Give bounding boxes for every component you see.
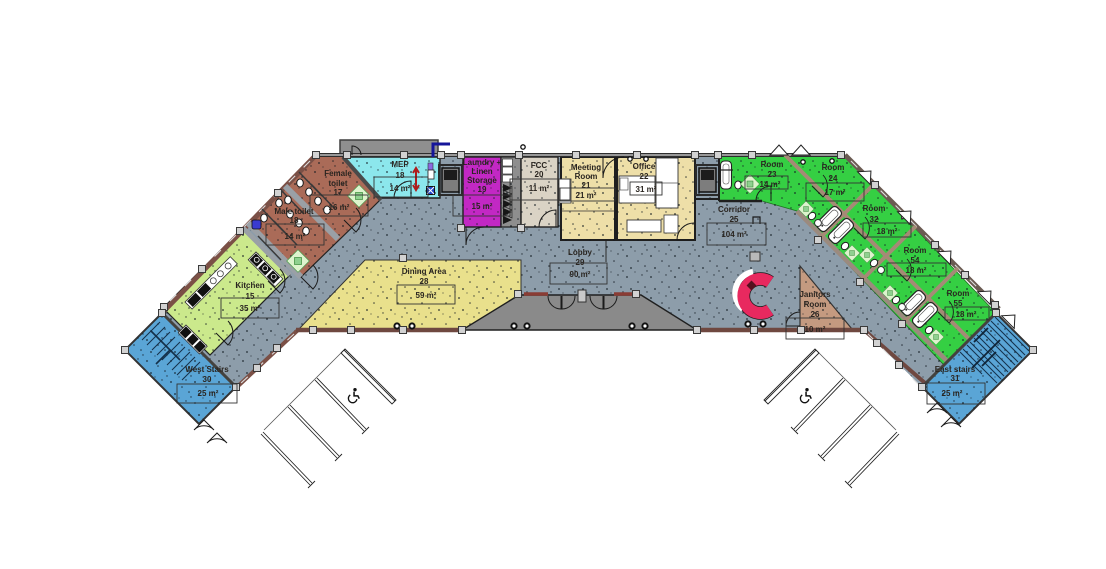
- svg-text:17 m²: 17 m²: [825, 188, 846, 197]
- svg-text:10 m²: 10 m²: [805, 325, 826, 334]
- svg-text:Meeting: Meeting: [571, 163, 601, 172]
- svg-text:East stairs: East stairs: [935, 365, 976, 374]
- svg-text:Corridor: Corridor: [718, 205, 750, 214]
- svg-text:14 m²: 14 m²: [390, 184, 411, 193]
- svg-text:Room: Room: [904, 246, 927, 255]
- svg-text:MEP: MEP: [391, 160, 409, 169]
- svg-text:Female: Female: [324, 169, 352, 178]
- svg-text:16 m²: 16 m²: [329, 203, 350, 212]
- svg-text:31 m²: 31 m²: [636, 185, 657, 194]
- svg-text:25 m²: 25 m²: [198, 389, 219, 398]
- svg-text:20: 20: [535, 170, 544, 179]
- svg-text:Dining Area: Dining Area: [402, 267, 447, 276]
- svg-text:Room: Room: [863, 204, 886, 213]
- svg-text:24: 24: [829, 174, 838, 183]
- svg-text:Storage: Storage: [467, 176, 497, 185]
- svg-text:25 m²: 25 m²: [942, 389, 963, 398]
- svg-text:19: 19: [478, 185, 487, 194]
- svg-text:Office: Office: [633, 162, 656, 171]
- svg-text:15 m²: 15 m²: [472, 202, 493, 211]
- svg-text:18 m²: 18 m²: [877, 227, 898, 236]
- svg-text:17: 17: [334, 188, 343, 197]
- svg-text:Laundry +: Laundry +: [463, 158, 502, 167]
- svg-text:104 m²: 104 m²: [721, 230, 747, 239]
- svg-text:14 m²: 14 m²: [285, 232, 306, 241]
- svg-text:Janitors: Janitors: [799, 290, 831, 299]
- svg-text:54: 54: [911, 256, 920, 265]
- svg-text:15: 15: [246, 292, 255, 301]
- svg-text:toilet: toilet: [328, 179, 347, 188]
- svg-text:Linen: Linen: [471, 167, 492, 176]
- svg-text:Male toilet: Male toilet: [274, 207, 313, 216]
- svg-text:18: 18: [396, 171, 405, 180]
- svg-text:Lobby: Lobby: [568, 248, 593, 257]
- svg-text:Room: Room: [822, 163, 845, 172]
- svg-text:21 m²: 21 m²: [576, 191, 597, 200]
- svg-text:FCC: FCC: [531, 161, 548, 170]
- svg-text:31: 31: [951, 374, 960, 383]
- svg-text:Room: Room: [575, 172, 598, 181]
- svg-text:Room: Room: [761, 160, 784, 169]
- svg-text:90 m²: 90 m²: [570, 270, 591, 279]
- svg-text:Kitchen: Kitchen: [235, 281, 264, 290]
- svg-text:21: 21: [582, 181, 591, 190]
- svg-text:23: 23: [768, 170, 777, 179]
- svg-text:14 m²: 14 m²: [760, 180, 781, 189]
- svg-text:35 m²: 35 m²: [240, 304, 261, 313]
- svg-text:29: 29: [576, 258, 585, 267]
- svg-text:18 m²: 18 m²: [956, 310, 977, 319]
- svg-text:22: 22: [640, 172, 649, 181]
- svg-text:59 m²: 59 m²: [416, 291, 437, 300]
- svg-text:11 m²: 11 m²: [529, 184, 550, 193]
- svg-text:West Stairs: West Stairs: [185, 365, 229, 374]
- svg-text:Room: Room: [804, 300, 827, 309]
- svg-text:Room: Room: [947, 289, 970, 298]
- svg-text:18 m²: 18 m²: [906, 266, 927, 275]
- svg-text:30: 30: [203, 375, 212, 384]
